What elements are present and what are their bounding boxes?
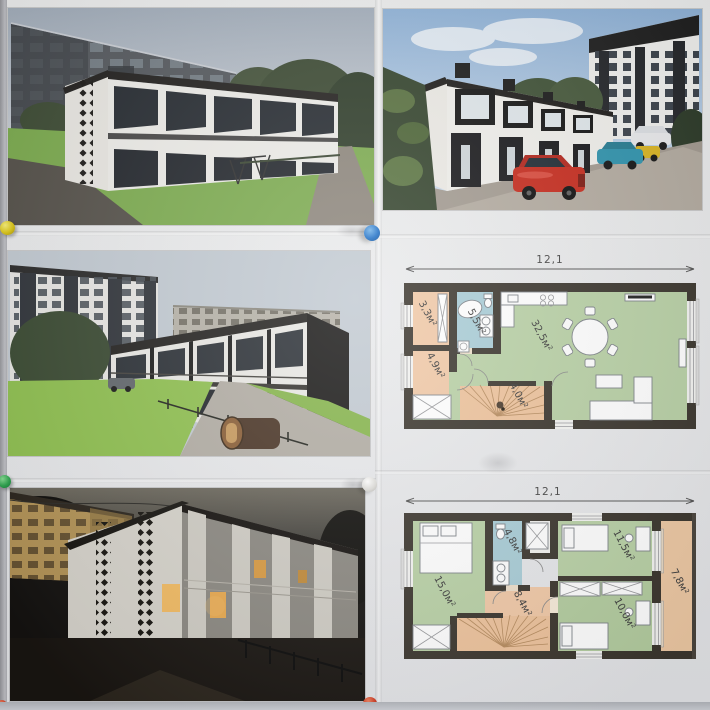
render-top-left-image bbox=[8, 8, 374, 225]
sideboard bbox=[679, 339, 686, 367]
sheet-crease-left-lower bbox=[0, 478, 376, 483]
toilet bbox=[485, 299, 492, 308]
pushpin-yellow bbox=[0, 221, 15, 235]
render-bottom-left-image bbox=[10, 488, 365, 701]
photo-board: 12,1 bbox=[0, 0, 710, 710]
pushpin-white bbox=[362, 477, 377, 492]
paper-smudge bbox=[478, 452, 518, 474]
render-middle-left-image bbox=[8, 251, 370, 456]
sofa-chaise bbox=[634, 377, 652, 403]
dining-table bbox=[572, 319, 608, 355]
sheet-gap-vertical bbox=[375, 0, 382, 702]
lawn-left bbox=[8, 379, 213, 456]
sheet-crease-right-lower bbox=[375, 470, 710, 475]
plan1-dimension-label: 12,1 bbox=[536, 254, 563, 266]
toilet-tank bbox=[484, 294, 492, 299]
wall-bottom-strip bbox=[0, 702, 710, 710]
toilet-tank bbox=[496, 524, 505, 529]
desk-3 bbox=[636, 601, 650, 625]
gable-ornament bbox=[79, 79, 93, 184]
floor-plan-first-floor: 12,1 bbox=[400, 253, 700, 433]
barrel-sauna bbox=[221, 417, 280, 449]
coffee-table bbox=[596, 375, 622, 388]
sheet-crease-right-upper bbox=[375, 234, 710, 239]
sheet-crease-left-upper bbox=[7, 231, 376, 236]
desk-2 bbox=[636, 527, 650, 551]
plan1-dimension: 12,1 bbox=[406, 254, 694, 272]
pushpin-blue bbox=[364, 225, 380, 241]
fridge bbox=[501, 305, 514, 327]
render-top-right-image bbox=[383, 9, 702, 210]
sofa bbox=[590, 401, 652, 420]
floor-plan-second-floor: 12,1 bbox=[400, 485, 700, 675]
wall-edge-strip bbox=[0, 0, 7, 710]
tv bbox=[628, 296, 652, 299]
plan1-smudge-2 bbox=[501, 407, 505, 411]
kitchen-sink bbox=[508, 295, 518, 302]
plan2-dimension: 12,1 bbox=[406, 486, 694, 504]
plan2-dimension-label: 12,1 bbox=[534, 486, 561, 498]
